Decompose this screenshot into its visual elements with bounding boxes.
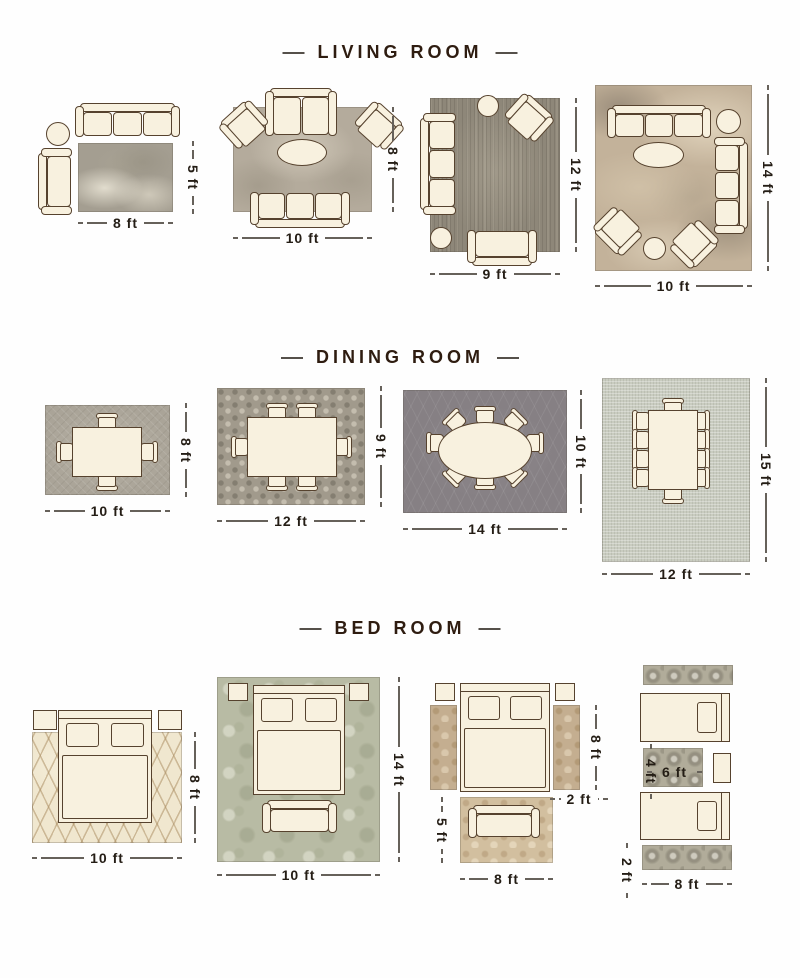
runner-height-dimension: 2 ft [619,843,635,875]
loveseat [265,88,337,136]
ottoman [643,237,666,260]
nightstand [33,710,57,730]
height-dimension: 15 ft [758,378,774,562]
rug [78,143,173,212]
dining-room-layout-14x10: 10 ft 14 ft [400,382,595,547]
heading-dash [300,628,322,630]
heading-dash [281,357,303,359]
runner-rug [642,845,732,870]
dining-room-layout-12x15: 15 ft 12 ft [595,370,785,590]
width-dimension: 8 ft [78,215,173,231]
nightstand [228,683,248,701]
living-room-layout-9x12: 12 ft 9 ft [420,84,600,294]
height-dimension: 10 ft [573,390,589,513]
dining-chair [140,441,158,463]
sofa [714,137,748,234]
heading-dash [497,357,519,359]
bed [58,710,152,823]
height-dimension: 9 ft [373,386,389,507]
heading-dash [479,628,501,630]
width-dimension: 10 ft [217,867,380,883]
ottoman [430,227,452,249]
nightstand [349,683,369,701]
coffee-table [277,139,327,166]
sofa [420,113,456,215]
height-dimension: 8 ft [178,403,194,497]
section-title-bed-room: BED ROOM [300,618,501,639]
chaise [38,148,72,215]
width-dimension: 10 ft [32,850,182,866]
height-dimension: 14 ft [391,677,407,862]
width-dimension: 10 ft [45,503,170,519]
width-dimension: 9 ft [430,266,560,282]
sofa [75,103,180,137]
dining-table [247,417,337,477]
width-dimension: 10 ft [595,278,752,294]
bed [253,685,345,795]
bench [262,800,337,833]
bed-room-layout-10x14: 14 ft 10 ft [215,675,410,890]
runner-height-dimension: 8 ft [588,705,604,790]
width-dimension: 12 ft [602,566,750,582]
living-room-layout-10x8: 8 ft 10 ft [225,82,405,252]
runner-rug [430,705,457,790]
runner-width-dimension: 2 ft [550,791,608,807]
rug-size-guide: LIVING ROOM 5 ft 8 ft [0,0,800,978]
height-dimension: 14 ft [760,85,776,271]
nightstand [555,683,575,701]
accent-rug-width-dimension: 6 ft [647,764,701,780]
width-dimension: 12 ft [217,513,365,529]
heading-dash [283,52,305,54]
width-dimension: 10 ft [233,230,372,246]
loveseat [467,230,537,266]
heading-dash [496,52,518,54]
bench [468,805,540,838]
section-title-dining-room: DINING ROOM [281,347,519,368]
oval-dining-table [438,422,532,479]
runner-rug [643,665,733,685]
width-dimension: 8 ft [642,876,732,892]
section-title-text: BED ROOM [335,618,466,639]
nightstand [435,683,455,701]
sofa [607,105,711,138]
bed-room-layout-runners: 8 ft 2 ft 5 ft 8 ft [420,675,620,895]
height-dimension: 8 ft [385,107,401,212]
runner-rug [553,705,580,790]
ottoman [477,95,499,117]
height-dimension: 5 ft [185,141,201,214]
nightstand [158,710,182,730]
width-dimension: 8 ft [460,871,553,887]
width-dimension: 14 ft [403,521,567,537]
bed-room-layout-10x8: 8 ft 10 ft [25,700,210,875]
sofa [250,192,350,228]
nightstand [713,753,731,783]
side-table [46,122,70,146]
dining-room-layout-10x8: 8 ft 10 ft [30,395,205,530]
coffee-table [633,142,684,168]
section-title-living-room: LIVING ROOM [283,42,518,63]
dining-table [72,427,142,477]
twin-bed [640,693,730,742]
bed [460,683,550,792]
front-rug-height-dimension: 5 ft [434,797,450,863]
height-dimension: 12 ft [568,98,584,252]
bed-room-layout-twin-runners: 4 ft 6 ft 2 ft 8 ft [615,660,785,900]
living-room-layout-10x14: 14 ft 10 ft [595,70,785,310]
height-dimension: 8 ft [187,732,203,843]
dining-table [648,410,698,490]
side-table [716,109,741,134]
section-title-text: DINING ROOM [316,347,484,368]
dining-room-layout-12x9: 9 ft 12 ft [210,378,395,543]
section-title-text: LIVING ROOM [318,42,483,63]
twin-bed [640,792,730,840]
living-room-layout-8x5: 5 ft 8 ft [30,95,205,245]
